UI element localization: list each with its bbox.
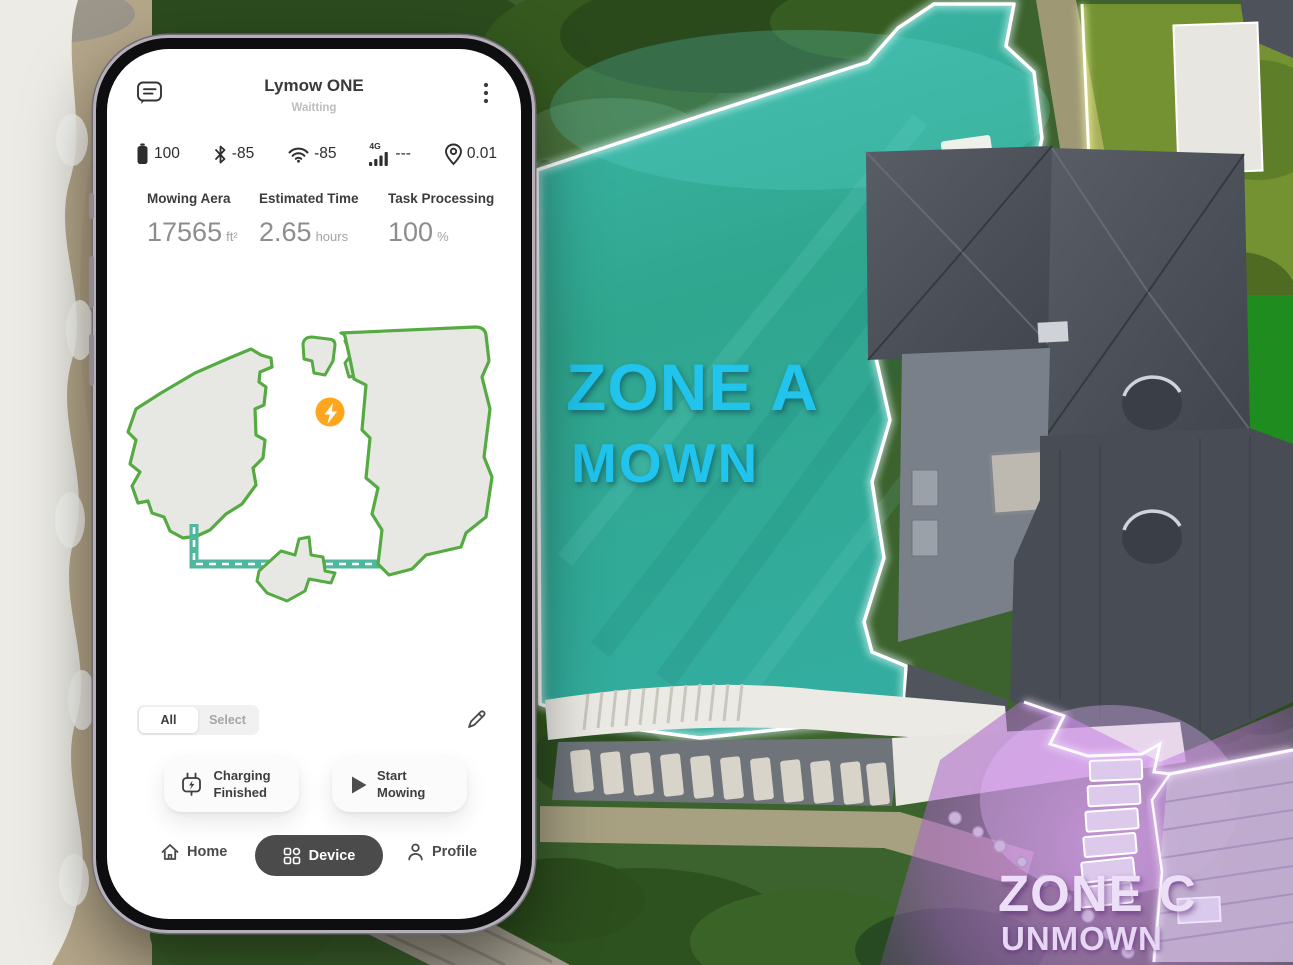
mute-switch[interactable] (89, 193, 94, 219)
map-zone-top[interactable] (303, 337, 335, 375)
phone-frame: Lymow ONE Waitting 100 (96, 38, 532, 930)
profile-icon (406, 842, 425, 862)
tab-select[interactable]: Select (198, 707, 257, 733)
home-icon (160, 842, 180, 862)
stat-unit: hours (316, 229, 349, 244)
bluetooth-icon (213, 144, 228, 165)
stat-value: 17565 (147, 217, 222, 248)
zone-a-status: MOWN (571, 436, 759, 491)
map-zone-right[interactable] (341, 327, 492, 575)
stat-label: Mowing Aera (147, 191, 238, 206)
nav-profile[interactable]: Profile (406, 842, 477, 862)
stat-value: 2.65 (259, 217, 312, 248)
device-grid-icon (283, 847, 301, 865)
gps-status: 0.01 (444, 143, 497, 166)
zone-a-label: ZONE A (566, 354, 819, 420)
nav-device-label: Device (309, 848, 356, 864)
volume-up-button[interactable] (89, 256, 94, 308)
nav-home-label: Home (187, 844, 227, 860)
house-roof (866, 146, 1293, 790)
battery-status: 100 (135, 142, 180, 166)
device-status-bar: 100 -85 -85 (135, 138, 497, 170)
nav-home[interactable]: Home (160, 842, 227, 862)
battery-icon (135, 142, 150, 166)
start-mowing-button[interactable]: Start Mowing (332, 757, 467, 812)
mowing-stats: Mowing Aera 17565 ft² Estimated Time 2.6… (107, 191, 521, 281)
bottom-navigation: Home Device Profile (107, 834, 521, 880)
wifi-status: -85 (287, 145, 336, 163)
more-menu-button[interactable] (478, 81, 494, 105)
device-status-text: Waitting (107, 102, 521, 114)
zone-c-status: UNMOWN (1001, 922, 1163, 955)
bluetooth-status: -85 (213, 144, 254, 165)
stat-value: 100 (388, 217, 433, 248)
bluetooth-value: -85 (232, 145, 254, 163)
device-title: Lymow ONE (107, 76, 521, 96)
nav-profile-label: Profile (432, 844, 477, 860)
stat-mowing-area: Mowing Aera 17565 ft² (147, 191, 238, 248)
cellular-value: --- (395, 145, 411, 163)
stat-unit: ft² (226, 229, 238, 244)
pencil-icon (465, 707, 489, 731)
gps-value: 0.01 (467, 145, 497, 163)
lawn-map-canvas (109, 317, 517, 629)
map-zone-bottom[interactable] (257, 537, 335, 601)
battery-value: 100 (154, 145, 180, 163)
map-zone-left[interactable] (128, 349, 272, 538)
wifi-value: -85 (314, 145, 336, 163)
charging-finished-label: Charging Finished (214, 768, 286, 802)
start-mowing-label: Start Mowing (377, 768, 449, 802)
charging-station-marker[interactable] (310, 392, 350, 432)
charging-finished-button[interactable]: Charging Finished (164, 757, 299, 812)
stat-unit: % (437, 229, 449, 244)
screenshot-stage: ZONE A MOWN ZONE C UNMOWN Lymow ONE Wait… (0, 0, 1293, 965)
nav-device[interactable]: Device (255, 835, 383, 876)
play-icon (350, 775, 368, 795)
stat-label: Task Processing (388, 191, 494, 206)
location-pin-icon (444, 143, 463, 166)
edit-map-button[interactable] (465, 707, 489, 731)
tab-all[interactable]: All (139, 707, 198, 733)
kebab-menu-icon (478, 81, 494, 105)
stat-task-processing: Task Processing 100 % (388, 191, 494, 248)
zone-c-label: ZONE C (998, 868, 1197, 919)
app-screen: Lymow ONE Waitting 100 (107, 49, 521, 919)
lawn-map[interactable] (109, 317, 517, 629)
stat-estimated-time: Estimated Time 2.65 hours (259, 191, 359, 248)
charger-plug-icon (178, 771, 205, 798)
stat-label: Estimated Time (259, 191, 359, 206)
cellular-status: 4G --- (369, 142, 411, 166)
wifi-icon (287, 146, 310, 163)
map-filter-tabs: All Select (137, 705, 259, 735)
volume-down-button[interactable] (89, 334, 94, 386)
signal-bars-icon (369, 149, 389, 166)
